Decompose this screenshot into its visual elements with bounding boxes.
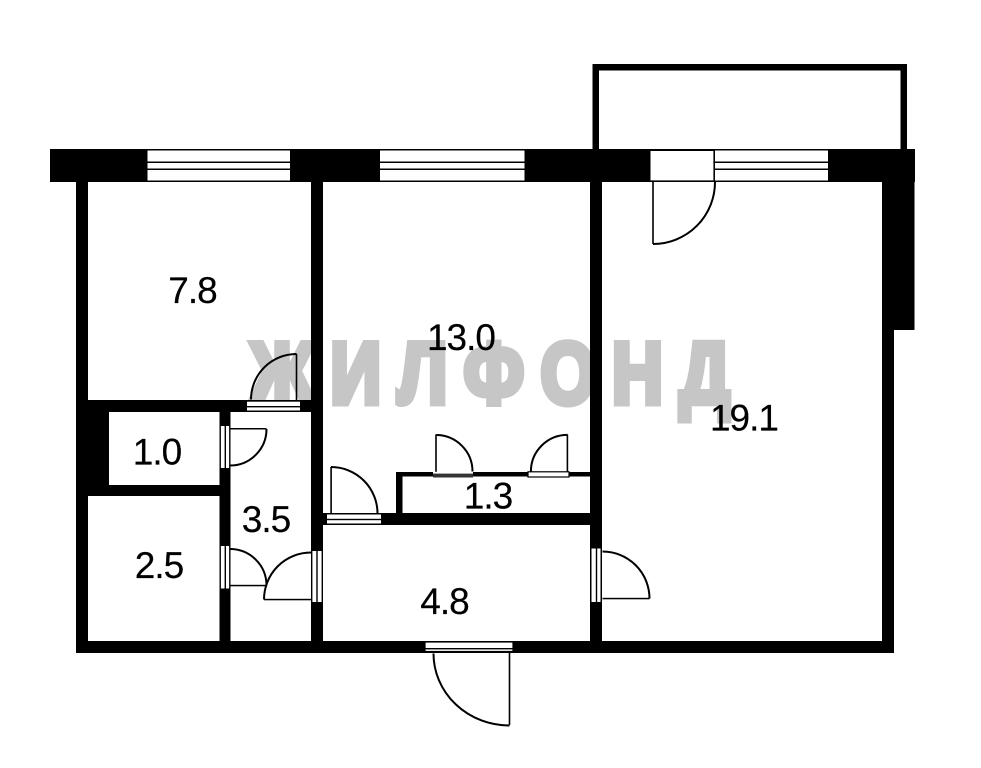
svg-text:2.5: 2.5: [135, 545, 184, 586]
svg-text:7.8: 7.8: [168, 270, 216, 311]
svg-text:4.8: 4.8: [420, 581, 468, 622]
svg-text:3.5: 3.5: [242, 499, 291, 540]
svg-text:19.1: 19.1: [710, 398, 778, 439]
svg-text:1.3: 1.3: [464, 476, 512, 517]
svg-text:13.0: 13.0: [427, 317, 495, 358]
svg-text:1.0: 1.0: [133, 432, 182, 473]
